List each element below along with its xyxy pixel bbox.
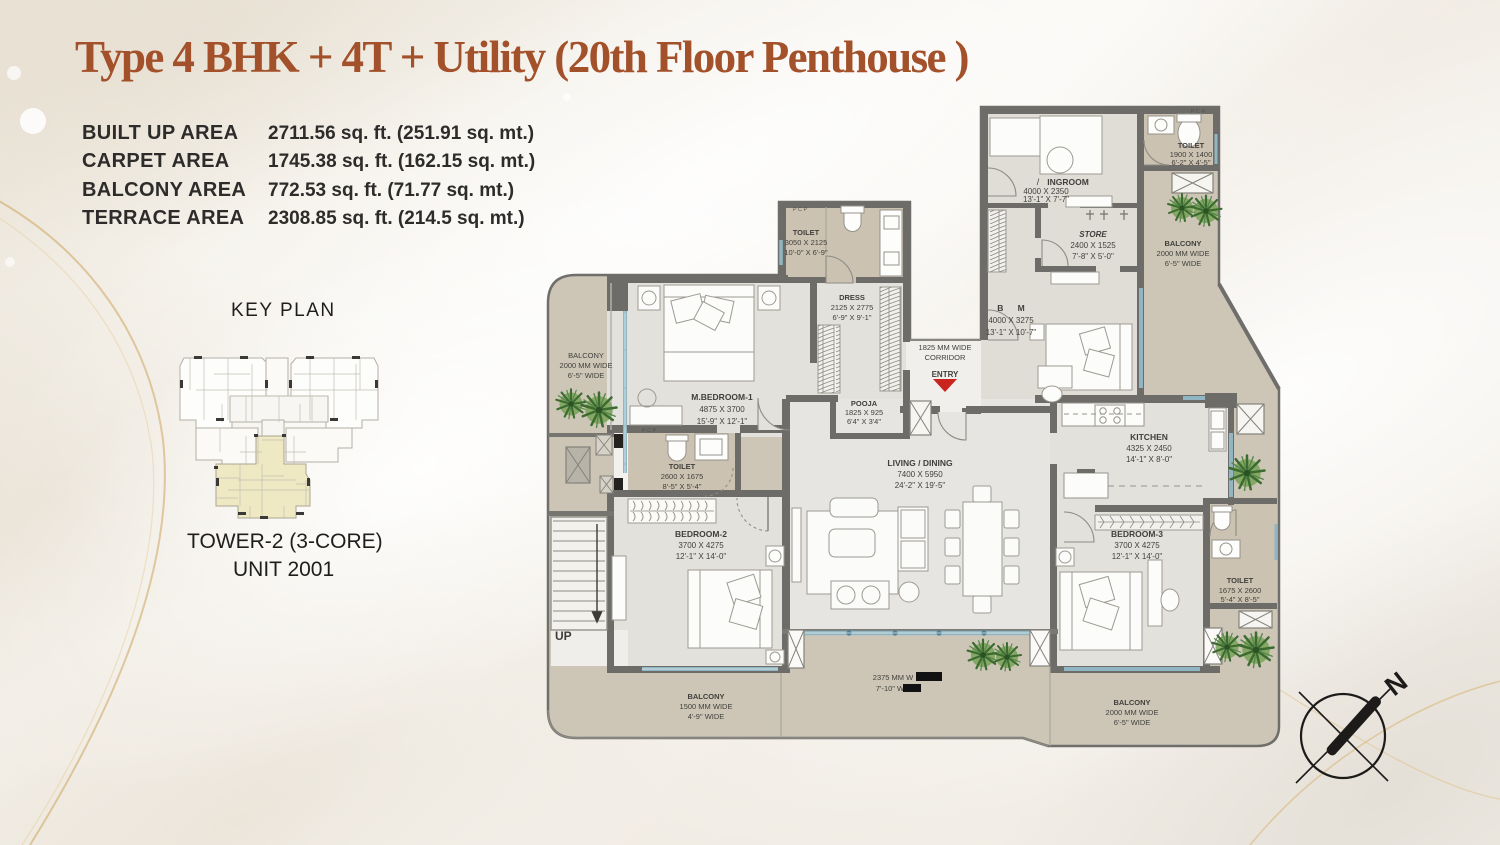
- svg-text:INGROOM: INGROOM: [1047, 177, 1089, 187]
- svg-text:7400 X 5950: 7400 X 5950: [897, 470, 943, 479]
- svg-text:6'-5" WIDE: 6'-5" WIDE: [1165, 259, 1202, 268]
- svg-text:4000 X 3275: 4000 X 3275: [988, 316, 1034, 325]
- svg-text:5'-4" X 8'-5": 5'-4" X 8'-5": [1220, 595, 1259, 604]
- svg-text:B M: B M: [997, 303, 1024, 313]
- svg-text:13'-1" X 10'-7": 13'-1" X 10'-7": [986, 328, 1037, 337]
- svg-text:7'-8" X 5'-0": 7'-8" X 5'-0": [1072, 252, 1114, 261]
- svg-text:6'-5" WIDE: 6'-5" WIDE: [568, 371, 605, 380]
- svg-text:3050 X 2125: 3050 X 2125: [785, 238, 828, 247]
- svg-text:15'-9" X 12'-1": 15'-9" X 12'-1": [697, 417, 748, 426]
- svg-text:DRESS: DRESS: [839, 293, 865, 302]
- svg-text:6'-2" X 4'-5": 6'-2" X 4'-5": [1171, 158, 1210, 167]
- svg-text:P C P: P C P: [793, 207, 808, 213]
- svg-text:BEDROOM-2: BEDROOM-2: [675, 529, 727, 539]
- svg-text:M.BEDROOM-1: M.BEDROOM-1: [691, 392, 753, 402]
- svg-text:2000 MM WIDE: 2000 MM WIDE: [1157, 249, 1210, 258]
- svg-text:P C P: P C P: [1191, 109, 1206, 115]
- svg-text:ENTRY: ENTRY: [932, 370, 959, 379]
- svg-text:3700 X 4275: 3700 X 4275: [678, 541, 724, 550]
- svg-text:1675 X 2600: 1675 X 2600: [1219, 586, 1262, 595]
- svg-text:P C P: P C P: [642, 428, 657, 434]
- svg-text:6'-9" X 9'-1": 6'-9" X 9'-1": [832, 313, 871, 322]
- svg-text:UP: UP: [555, 629, 572, 643]
- svg-text:6'-5" WIDE: 6'-5" WIDE: [1114, 718, 1151, 727]
- svg-text:TOILET: TOILET: [1227, 576, 1254, 585]
- svg-text:1825 MM WIDE: 1825 MM WIDE: [919, 343, 972, 352]
- svg-text:1825 X 925: 1825 X 925: [845, 408, 883, 417]
- svg-text:KITCHEN: KITCHEN: [1130, 432, 1168, 442]
- svg-text:STORE: STORE: [1079, 230, 1107, 239]
- svg-text:4'-9" WIDE: 4'-9" WIDE: [688, 712, 725, 721]
- svg-text:POOJA: POOJA: [851, 399, 878, 408]
- svg-text:TOILET: TOILET: [1178, 141, 1205, 150]
- svg-text:BALCONY: BALCONY: [1113, 698, 1150, 707]
- svg-text:4875 X 3700: 4875 X 3700: [699, 405, 745, 414]
- svg-text:8'-5" X 5'-4": 8'-5" X 5'-4": [662, 482, 701, 491]
- svg-text:14'-1" X 8'-0": 14'-1" X 8'-0": [1126, 455, 1172, 464]
- svg-text:2400 X 1525: 2400 X 1525: [1070, 241, 1116, 250]
- svg-text:7'-10" W: 7'-10" W: [876, 684, 905, 693]
- svg-text:CORRIDOR: CORRIDOR: [925, 353, 966, 362]
- svg-text:BALCONY: BALCONY: [568, 351, 604, 360]
- svg-text:12'-1" X 14'-0": 12'-1" X 14'-0": [1112, 552, 1163, 561]
- svg-text:2000 MM WIDE: 2000 MM WIDE: [1106, 708, 1159, 717]
- svg-text:TOILET: TOILET: [793, 228, 820, 237]
- svg-text:2125 X 2775: 2125 X 2775: [831, 303, 874, 312]
- svg-text:BALCONY: BALCONY: [687, 692, 724, 701]
- svg-text:3700 X 4275: 3700 X 4275: [1114, 541, 1160, 550]
- svg-text:13'-1" X 7'-7": 13'-1" X 7'-7": [1023, 195, 1069, 204]
- svg-text:2600 X 1675: 2600 X 1675: [661, 472, 704, 481]
- svg-text:2000 MM WIDE: 2000 MM WIDE: [560, 361, 613, 370]
- svg-text:6'4" X 3'4": 6'4" X 3'4": [847, 417, 881, 426]
- svg-text:2375 MM W: 2375 MM W: [873, 673, 914, 682]
- svg-text:BEDROOM-3: BEDROOM-3: [1111, 529, 1163, 539]
- svg-text:1500 MM WIDE: 1500 MM WIDE: [680, 702, 733, 711]
- svg-text:12'-1" X 14'-0": 12'-1" X 14'-0": [676, 552, 727, 561]
- svg-text:24'-2" X 19'-5": 24'-2" X 19'-5": [895, 481, 946, 490]
- svg-text:LIVING / DINING: LIVING / DINING: [887, 458, 953, 468]
- svg-text:N: N: [1379, 666, 1413, 702]
- svg-text:10'-0" X 6'-9": 10'-0" X 6'-9": [784, 248, 828, 257]
- svg-text:4325 X 2450: 4325 X 2450: [1126, 444, 1172, 453]
- svg-text:BALCONY: BALCONY: [1164, 239, 1201, 248]
- svg-text:TOILET: TOILET: [669, 462, 696, 471]
